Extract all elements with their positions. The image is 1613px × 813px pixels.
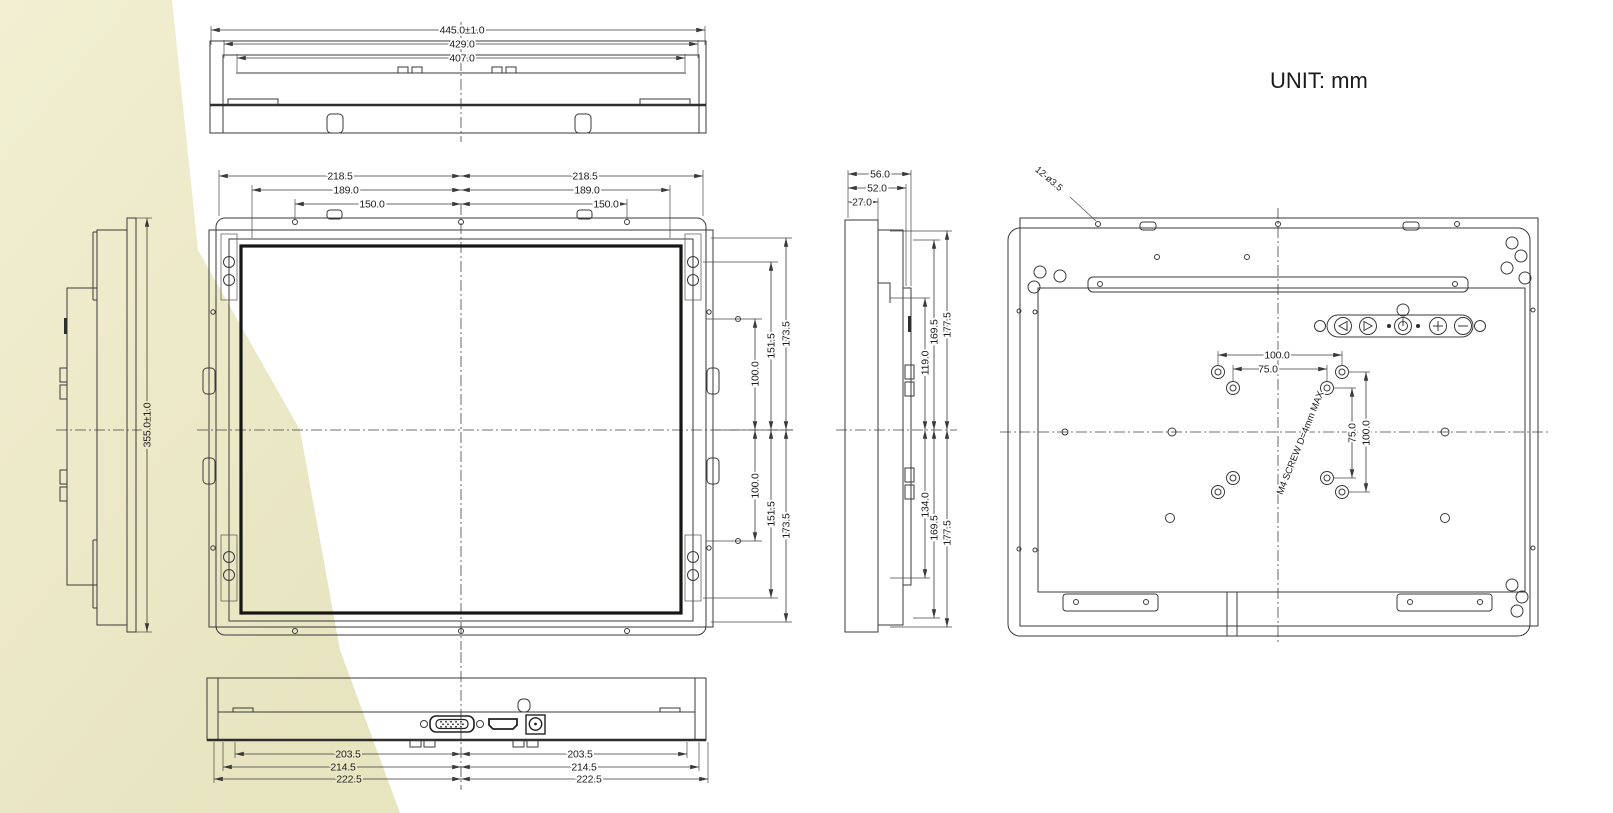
led-dot xyxy=(1416,324,1420,328)
dim-side-height: 355.0±1.0 xyxy=(142,402,154,447)
dim-vesa-75h: 75.0 xyxy=(1258,364,1278,376)
drawing-sheet: UNIT: mm 445.0±1.0 429.0 407.0 xyxy=(0,0,1613,813)
top-view: 445.0±1.0 429.0 407.0 xyxy=(210,22,706,142)
dim-sv-right-1l: 177.5 xyxy=(942,520,954,546)
dim-bottom-1-right: 203.5 xyxy=(567,749,593,761)
osd-button-bar xyxy=(1315,304,1486,337)
dim-bottom-2-right: 214.5 xyxy=(571,762,597,774)
dc-jack xyxy=(526,715,545,734)
rear-panel xyxy=(1038,288,1525,592)
background-wedge xyxy=(0,0,400,813)
dim-front-right-3u: 100.0 xyxy=(750,361,762,387)
dim-bottom-3-left: 222.5 xyxy=(336,774,362,786)
dim-front-hole-left: 150.0 xyxy=(359,199,385,211)
dim-front-right-2u: 151.5 xyxy=(766,333,778,359)
dim-top-outer-width: 445.0±1.0 xyxy=(440,25,485,37)
dim-vesa-100h: 100.0 xyxy=(1264,350,1290,362)
dim-vesa-100v: 100.0 xyxy=(1361,420,1373,446)
dim-bottom-3-right: 222.5 xyxy=(576,774,602,786)
power-button-icon xyxy=(1395,318,1412,335)
screw-note-label: M4 SCREW D=4mm MAX xyxy=(1275,389,1327,496)
left-arrow-button-icon xyxy=(1335,318,1352,335)
mount-foot xyxy=(575,114,591,133)
dim-sv-right-2l: 169.5 xyxy=(929,515,941,541)
right-side-view: 56.0 52.0 27.0 177.5 169.5 119.0 177.5 1… xyxy=(836,169,957,633)
unit-label: UNIT: mm xyxy=(1270,68,1368,93)
minus-button-icon xyxy=(1455,318,1472,335)
dim-front-right-3l: 100.0 xyxy=(750,473,762,499)
dim-front-half-width-left: 218.5 xyxy=(327,171,353,183)
right-arrow-button-icon xyxy=(1360,318,1377,335)
dim-front-right-2l: 151.5 xyxy=(766,501,778,527)
dim-depth-front: 27.0 xyxy=(852,197,872,209)
hdmi-connector xyxy=(489,719,517,729)
rear-chassis-outline xyxy=(1020,218,1538,626)
dim-front-hole-right: 150.0 xyxy=(593,199,619,211)
cable-tab xyxy=(518,699,530,712)
plus-button-icon xyxy=(1430,318,1447,335)
led-dot xyxy=(1387,324,1391,328)
dim-front-right-1l: 173.5 xyxy=(781,513,793,539)
dim-vesa-75v: 75.0 xyxy=(1347,423,1359,443)
dim-front-right-1u: 173.5 xyxy=(781,321,793,347)
dim-top-mid-width: 429.0 xyxy=(449,39,475,51)
dim-bottom-1-left: 203.5 xyxy=(335,749,361,761)
mount-foot xyxy=(327,114,343,133)
dim-top-inner-width: 407.0 xyxy=(449,53,475,65)
dim-sv-right-1u: 177.5 xyxy=(942,312,954,338)
dim-front-inner-left: 189.0 xyxy=(333,185,359,197)
rear-view: 100.0 75.0 75.0 100.0 12-ø3.5 M4 SCREW D… xyxy=(1000,164,1548,644)
dim-sv-right-3u: 119.0 xyxy=(920,350,932,375)
dim-depth-total: 56.0 xyxy=(870,169,890,181)
dim-bottom-2-left: 214.5 xyxy=(330,762,356,774)
dim-depth-mid: 52.0 xyxy=(867,183,887,195)
dim-front-inner-right: 189.0 xyxy=(574,185,600,197)
vga-connector xyxy=(421,716,484,732)
dim-front-half-width-right: 218.5 xyxy=(572,171,598,183)
technical-drawing-canvas: UNIT: mm 445.0±1.0 429.0 407.0 xyxy=(0,0,1613,813)
dim-sv-right-3l: 134.0 xyxy=(920,492,932,518)
hole-callout-label: 12-ø3.5 xyxy=(1033,164,1065,193)
dim-sv-right-2u: 169.5 xyxy=(929,319,941,345)
